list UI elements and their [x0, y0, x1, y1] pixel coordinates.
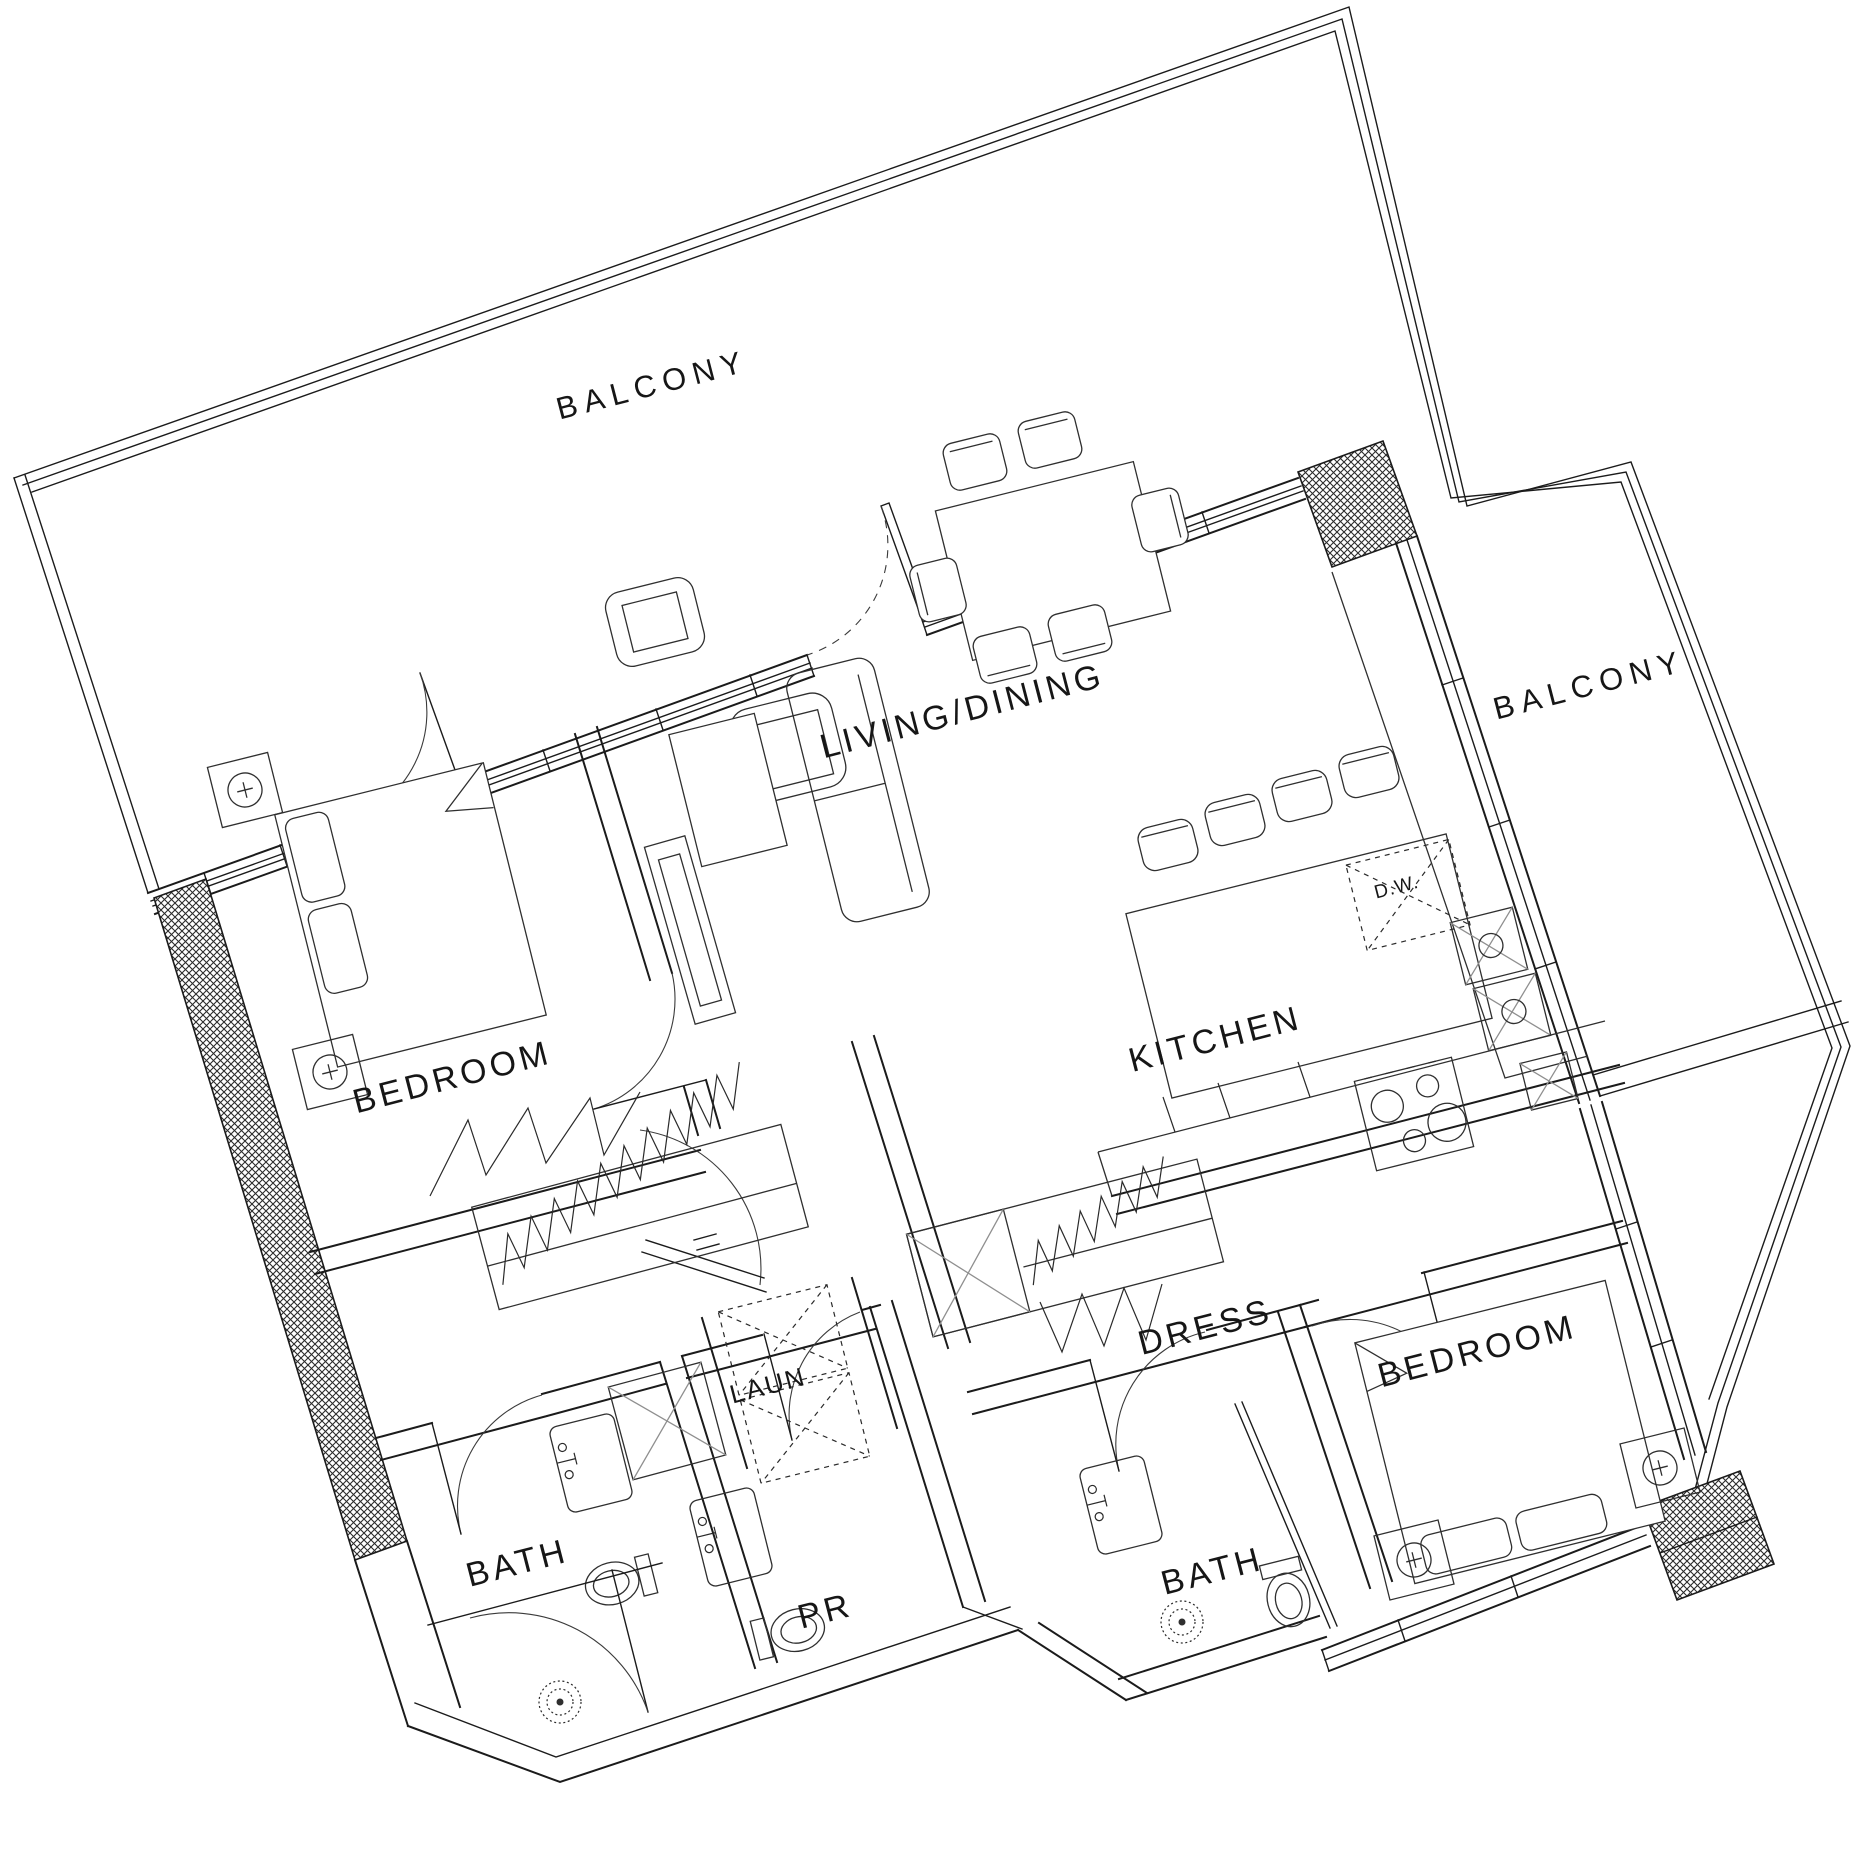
label-bath-left: BATH	[462, 1532, 572, 1595]
bath-right-vanity	[1078, 1454, 1163, 1555]
label-bath-right: BATH	[1157, 1540, 1267, 1603]
kitchen-fixtures	[1098, 572, 1605, 1196]
label-balcony-right: BALCONY	[1490, 643, 1690, 726]
label-kitchen: KITCHEN	[1125, 999, 1306, 1080]
armchair	[602, 574, 708, 670]
dining-set	[908, 410, 1191, 686]
bath-left-fixtures	[428, 1362, 726, 1723]
floor-plan-drawing: BALCONY BALCONY LIVING/DINING KITCHEN BE…	[0, 0, 1854, 1872]
entry-door	[640, 1130, 766, 1292]
closet-left	[453, 1056, 808, 1310]
dress-wardrobe	[904, 1148, 1224, 1336]
kitchen-sink-1	[1450, 907, 1528, 985]
bedroom-left-door-arc	[594, 973, 675, 1109]
bath-left-drain	[539, 1681, 581, 1723]
bath-left-shower-door	[470, 1570, 648, 1712]
stove	[1354, 1057, 1473, 1170]
closets	[430, 1056, 1223, 1483]
label-living-dining: LIVING/DINING	[816, 656, 1108, 766]
wall-bottom	[408, 1607, 1326, 1782]
kitchen-sink-2	[1473, 973, 1551, 1051]
living-furniture	[602, 574, 932, 1024]
sofa	[783, 655, 932, 925]
label-powder-room: PR	[794, 1586, 857, 1637]
living-balcony-door	[807, 503, 928, 655]
pr-vanity	[688, 1486, 773, 1587]
column-hatched-bottom-right	[1643, 1471, 1774, 1600]
label-dishwasher: D.W.	[1372, 872, 1421, 904]
bath-left-door-arc	[458, 1395, 542, 1534]
kitchen-counter-right	[1332, 572, 1588, 1078]
bed-left	[275, 763, 547, 1067]
bath-right-fixtures	[1078, 1454, 1315, 1643]
bar-stools	[1136, 744, 1402, 873]
nightstand-left-1	[207, 752, 282, 827]
column-hatched-top-right	[1298, 441, 1417, 567]
bath-left-shower-box	[608, 1362, 726, 1480]
bath-right-drain	[1161, 1601, 1203, 1643]
balcony-right-bottom-edge	[1593, 1001, 1848, 1096]
bath-left-vanity	[548, 1412, 633, 1513]
window-wall-kitchen-right	[1396, 536, 1600, 1103]
floor-plan-canvas: BALCONY BALCONY LIVING/DINING KITCHEN BE…	[0, 0, 1854, 1872]
label-balcony-top: BALCONY	[553, 343, 753, 426]
label-laundry: LAUN	[727, 1361, 809, 1409]
